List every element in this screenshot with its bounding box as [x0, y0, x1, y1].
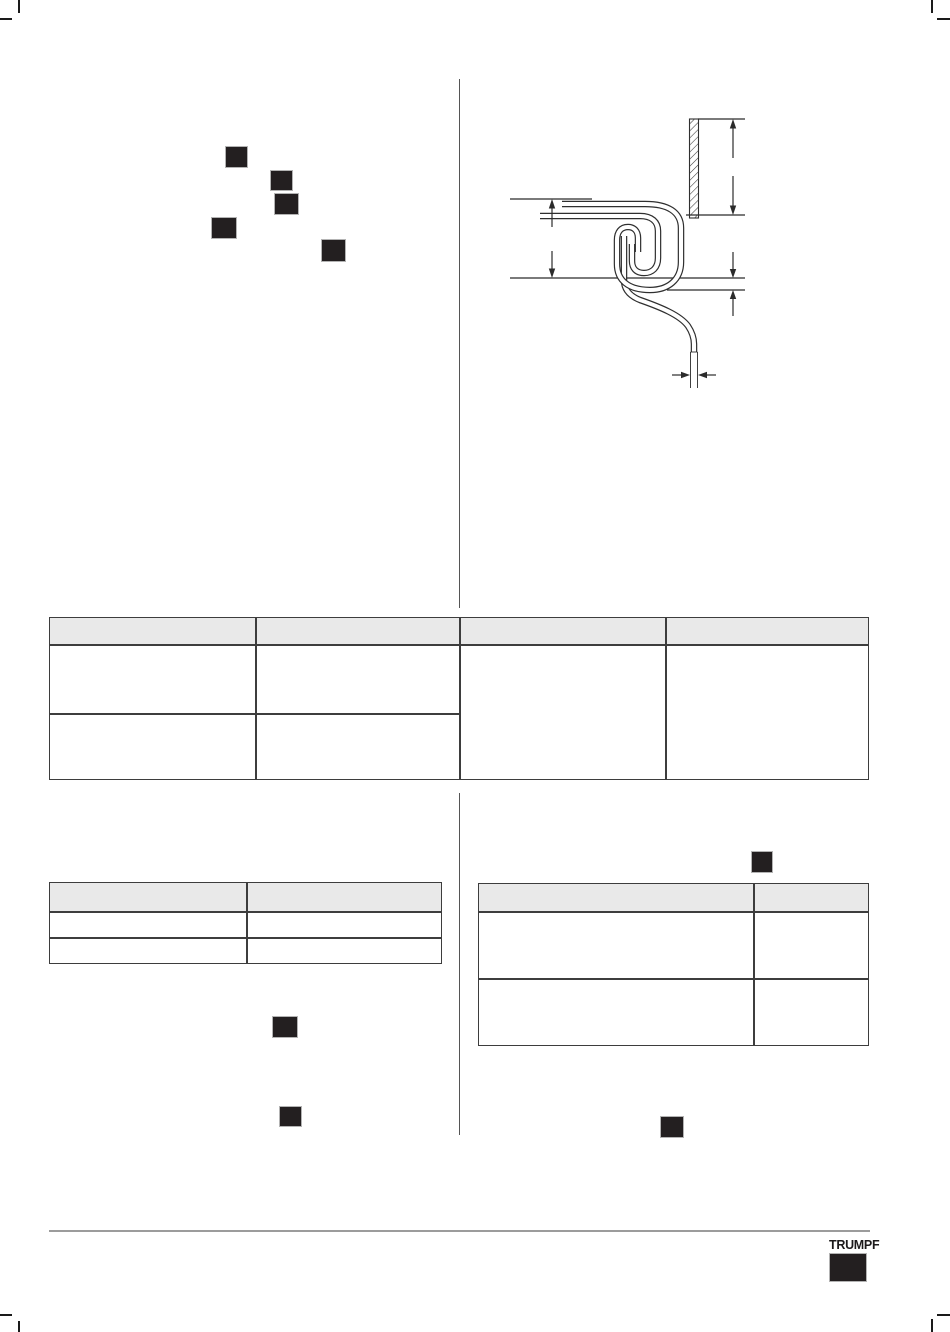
- lower-left-col-line: [246, 883, 248, 963]
- crop-mark-top-right-v: [931, 0, 933, 13]
- redaction-box: [279, 1106, 302, 1127]
- footer-rule: [49, 1230, 870, 1232]
- column-divider-bottom: [459, 793, 460, 1135]
- redaction-box: [274, 193, 299, 215]
- arrow-down: [730, 206, 736, 216]
- arrow-left: [698, 372, 707, 378]
- redaction-box: [270, 170, 293, 191]
- main-table-col-line-3: [665, 618, 667, 779]
- redaction-box: [211, 217, 237, 239]
- lower-right-col-line: [753, 884, 755, 1045]
- main-table-col-line-2: [459, 618, 461, 779]
- crop-mark-bottom-right-v: [931, 1319, 933, 1332]
- crop-mark-bottom-left-h: [0, 1314, 12, 1316]
- column-divider-top: [459, 79, 460, 608]
- crop-mark-bottom-left-v: [18, 1321, 20, 1332]
- crop-mark-top-left-v: [18, 0, 20, 13]
- redaction-box: [751, 851, 773, 873]
- main-table-col-line-1: [255, 618, 257, 779]
- redaction-box: [321, 239, 346, 262]
- redaction-box: [660, 1116, 684, 1138]
- trumpf-logo-text: TRUMPF: [829, 1239, 879, 1252]
- arrow-right: [681, 372, 690, 378]
- arrow-down: [549, 269, 555, 279]
- lower-left-table: [49, 882, 442, 964]
- redaction-box: [272, 1016, 298, 1038]
- lower-right-row-line: [479, 978, 868, 980]
- manual-page: TRUMPF: [0, 0, 950, 1332]
- trumpf-logo: TRUMPF: [829, 1239, 879, 1282]
- arrow-up: [730, 290, 736, 299]
- lower-right-table: [478, 883, 869, 1046]
- crop-mark-top-left-h: [0, 18, 12, 20]
- main-table: [49, 617, 869, 780]
- trumpf-logo-block: [829, 1253, 867, 1282]
- crop-mark-bottom-right-h: [937, 1314, 950, 1316]
- lower-right-header-line: [479, 911, 868, 913]
- redaction-box: [225, 146, 248, 168]
- hatched-wall-section: [690, 119, 699, 218]
- seam-cross-section-diagram: [500, 110, 750, 400]
- arrow-down: [730, 269, 736, 278]
- lower-right-table-header-row: [479, 884, 868, 911]
- crop-mark-top-right-h: [937, 18, 950, 20]
